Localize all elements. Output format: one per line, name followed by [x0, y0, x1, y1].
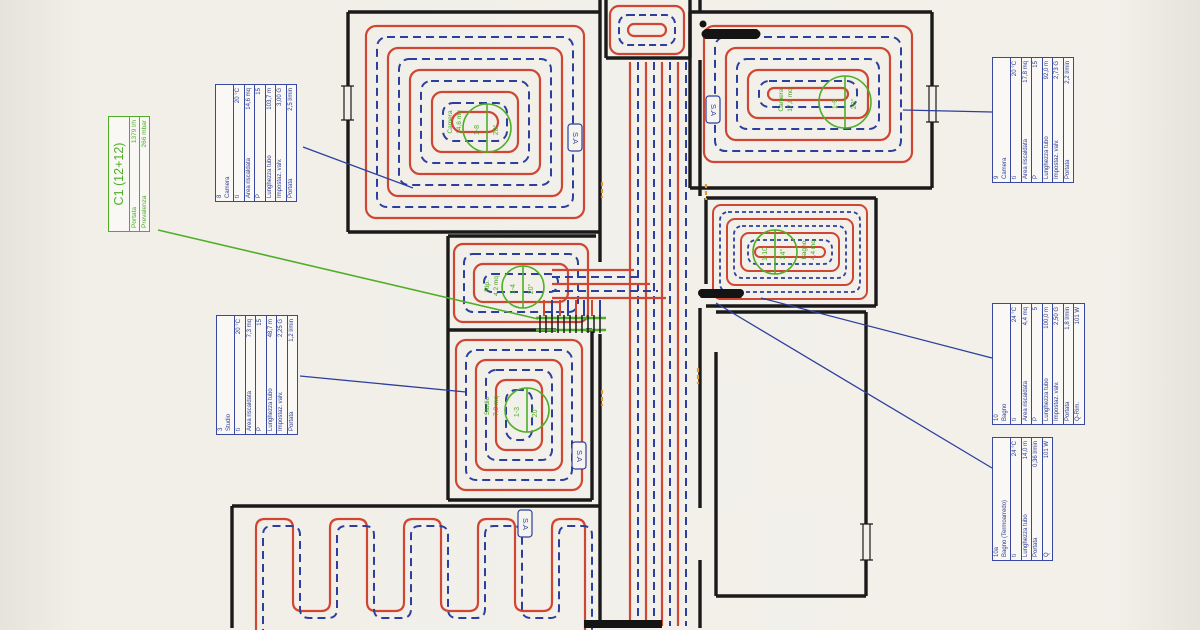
row-label: Lunghezza tubo [1044, 374, 1052, 421]
row-label: Portata [1065, 398, 1073, 421]
sa-tag-2: S.A [706, 96, 720, 123]
row-value: 0,36 l/min [1033, 441, 1041, 467]
circuit-number: 1-3 [514, 407, 521, 417]
room-marker-camera-9: 1-9 20° [819, 76, 871, 128]
manifold-c1 [536, 315, 606, 333]
row-label: Lunghezza tubo [1023, 510, 1031, 557]
row-label: ti [1012, 550, 1020, 557]
row-value: 20 °C [1012, 61, 1020, 76]
sa-label: S.A [575, 450, 584, 462]
room-name: Camera [447, 110, 454, 134]
circuit-table-3: 3 Studio ti20 °C Area riscaldata7,3 mq P… [216, 315, 298, 435]
row-label: ti [1012, 414, 1020, 421]
collector-title: C1 (12+12) [109, 117, 129, 231]
circuit-number: 1-9 [832, 99, 839, 109]
room-label-studio: Studio 7,3 mq [484, 396, 500, 416]
row-value: 48,7 m [268, 319, 276, 337]
circuit-table-8: 8 Camera ti20 °C Area riscaldata14,6 mq … [215, 84, 297, 202]
row-value: 1,2 l/min [289, 319, 297, 342]
row-label: Area riscaldata [1023, 377, 1031, 421]
row-value: 2,73 G [1054, 61, 1062, 79]
sa-label: S.A [709, 104, 718, 116]
room-name: Rip. [484, 280, 491, 292]
room-temp: 20° [527, 284, 535, 295]
circuit-id: 8 [217, 88, 225, 198]
collector-label-c1: C1 (12+12) Portata1379 l/h Prevalenza266… [108, 116, 150, 232]
row-label: ti [235, 191, 243, 198]
row-label: ti [1012, 172, 1020, 179]
row-label: P [1033, 413, 1041, 421]
circuit-table-10a: 10a Bagno (Termoarredo) ti24 °C Lunghezz… [992, 437, 1053, 561]
row-label: Lunghezza tubo [267, 151, 275, 198]
room-area: 4,4 mq [810, 240, 817, 260]
row-value: 92,0 m [1044, 61, 1052, 79]
row-value: 5 [1033, 307, 1041, 310]
room-name: Camera [778, 88, 785, 112]
termoarredo-top-icon [700, 21, 761, 40]
row-value: 2,5 l/min [288, 88, 296, 111]
row-label: Lunghezza tubo [1044, 132, 1052, 179]
row-value: 7,3 mq [247, 319, 255, 337]
sa-tag-1: S.A [568, 124, 582, 151]
row-label: ti [236, 424, 244, 431]
walls [232, 0, 932, 628]
row-label: P [256, 190, 264, 198]
row-value: 15 [1033, 61, 1041, 68]
room-name: Studio [484, 396, 491, 415]
room-marker-camera-8: 1-8 20° [463, 104, 511, 152]
circuit-id: 9 [994, 61, 1002, 179]
room-temp: 24° [779, 249, 787, 260]
plan-cut-bar [584, 620, 662, 628]
row-value: 100,0 m [1044, 307, 1052, 329]
row-value: 20 °C [235, 88, 243, 103]
room-marker-rip: 1-4 20° [502, 266, 544, 308]
circuit-number: 1-10 [762, 247, 769, 261]
room-temp: 20° [492, 125, 500, 136]
room-temp: 20° [531, 407, 539, 418]
row-label: Lunghezza tubo [268, 384, 276, 431]
termoarredo-bagno-icon [698, 289, 744, 298]
collector-row-value: 1379 l/h [131, 120, 138, 143]
row-value: 20 °C [236, 319, 244, 334]
room-area: 14,6 mq [456, 110, 463, 134]
row-value: 4,4 mq [1023, 307, 1031, 325]
row-value: 24 °C [1012, 441, 1020, 456]
row-label: Portata [289, 408, 297, 431]
circuit-table-10: 10 Bagno ti24 °C Area riscaldata4,4 mq P… [992, 303, 1085, 425]
joint-ticks [602, 182, 706, 406]
row-label: Area riscaldata [246, 154, 254, 198]
room-label-rip: Rip. 4,2 mq [484, 276, 500, 296]
sa-label: S.A [521, 518, 530, 530]
row-label: Impostaz. valv. [278, 387, 286, 431]
collector-row-label: Portata [131, 203, 138, 228]
circuit-number: 1-8 [474, 125, 481, 135]
window-symbols [341, 86, 939, 560]
circuit-number: 1-4 [510, 284, 517, 294]
sa-tag-4: S.A [518, 510, 532, 537]
row-value: 101 W [1075, 307, 1083, 324]
collector-row-value: 266 mbar [141, 120, 148, 147]
room-area: 7,3 mq [493, 396, 500, 416]
pipe-branch-manifold [544, 270, 666, 316]
row-value: 2,25 G [278, 319, 286, 337]
row-label: Portata [1033, 534, 1041, 557]
row-label: Impostaz. valv. [1054, 135, 1062, 179]
room-temp: 20° [850, 99, 858, 110]
collector-row-label: Prevalenza [141, 191, 148, 228]
room-name: Bagno [801, 240, 808, 259]
row-label: Area riscaldata [1023, 135, 1031, 179]
floor-heating-plan: 1-8 20° Camera 14,6 mq 1-9 20° Camera 17… [0, 0, 1200, 630]
row-value: 17,8 mq [1023, 61, 1031, 83]
room-name: Bagno [1002, 307, 1010, 421]
room-name: Bagno (Termoarredo) [1002, 441, 1010, 557]
row-label: P [257, 423, 265, 431]
row-label: Impostaz. valv. [277, 154, 285, 198]
heating-loop-camera-9 [704, 26, 912, 162]
row-label: Impostaz. valv. [1054, 377, 1062, 421]
heating-loop-camera-8 [366, 26, 584, 218]
row-value: 15 [256, 88, 264, 95]
pipe-trunk-corridor [630, 62, 686, 626]
row-label: Portata [288, 175, 296, 198]
row-value: 103,7 m [267, 88, 275, 110]
row-label: P [1033, 171, 1041, 179]
room-name: Studio [226, 319, 234, 431]
row-label: Q [1044, 548, 1052, 557]
circuit-id: 10a [994, 441, 1002, 557]
row-label: Area riscaldata [247, 387, 255, 431]
room-area: 17,8 mq [787, 88, 794, 112]
row-value: 24 °C [1012, 307, 1020, 322]
row-value: 14,0 m [1023, 441, 1031, 459]
row-value: 1,8 l/min [1065, 307, 1073, 330]
heating-loop-top-center [610, 6, 684, 54]
row-value: 3,00 G [277, 88, 285, 106]
circuit-id: 10 [994, 307, 1002, 421]
row-value: 101 W [1044, 441, 1052, 458]
circuit-table-9: 9 Camera ti20 °C Area riscaldata17,8 mq … [992, 57, 1074, 183]
heating-loop-bottom-room [256, 519, 592, 630]
circuit-id: 3 [218, 319, 226, 431]
row-value: 2,50 G [1054, 307, 1062, 325]
room-marker-bagno: 1-10 24° [753, 230, 797, 274]
row-label: Q-Rim. [1075, 398, 1083, 421]
row-label: Portata [1065, 156, 1073, 179]
sa-tag-3: S.A [572, 442, 586, 469]
room-name: Camera [1002, 61, 1010, 179]
room-area: 4,2 mq [493, 276, 500, 296]
row-value: 14,6 mq [246, 88, 254, 110]
row-value: 2,2 l/min [1065, 61, 1073, 84]
sa-label: S.A [571, 132, 580, 144]
row-value: 15 [257, 319, 265, 326]
room-name: Camera [225, 88, 233, 198]
heating-loop-bagno [713, 205, 867, 299]
